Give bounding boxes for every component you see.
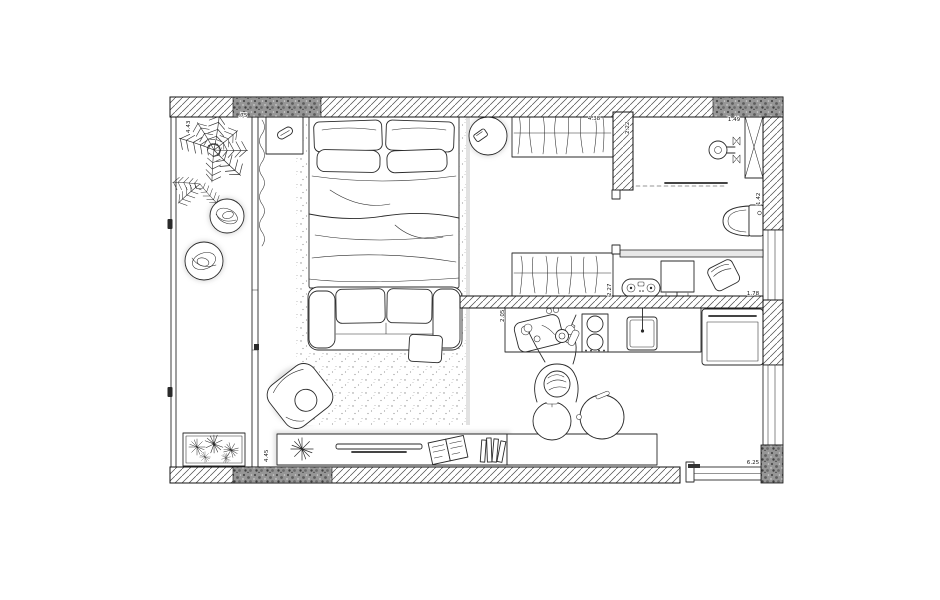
door-jamb	[612, 245, 620, 254]
dim-kitchen-depth: 2.05	[500, 309, 506, 322]
wall-right-kitchen	[763, 300, 783, 365]
wall-wc-divider	[620, 250, 763, 257]
seat-cushion	[706, 258, 741, 293]
log-stool	[185, 242, 223, 280]
shower-column	[745, 116, 763, 178]
door-handle	[254, 344, 259, 350]
log-stool	[210, 199, 244, 233]
bar-stool	[533, 400, 571, 440]
cooktop	[582, 314, 608, 352]
round-side-table	[469, 117, 507, 155]
kitchen	[505, 303, 763, 465]
study-area	[622, 258, 741, 297]
wall-right-column	[761, 445, 783, 483]
rug-edge-shade	[466, 115, 470, 425]
kitchen-island	[507, 434, 657, 465]
floor-plan-page: 4.43 .75 4.38 2.22 1.49 1.42 2.27 2.05 1…	[0, 0, 940, 600]
bathroom	[622, 116, 763, 236]
wall-top-concrete	[713, 97, 783, 117]
balcony-glazing-inner	[252, 117, 259, 467]
dim-shower-width: 1.49	[728, 117, 741, 123]
fern-plant	[171, 113, 249, 209]
dim-living-length: 4.45	[264, 449, 270, 462]
wall-kitchen-back	[460, 296, 763, 308]
curtain	[260, 120, 265, 246]
window-handle	[168, 387, 173, 397]
floor-plan-canvas: 4.43 .75 4.38 2.22 1.49 1.42 2.27 2.05 1…	[0, 0, 940, 600]
egg	[546, 308, 551, 313]
ottoman	[408, 334, 442, 363]
living-area	[260, 113, 508, 465]
nightstand	[266, 117, 303, 154]
shower-valve	[733, 155, 740, 163]
toilet	[723, 205, 763, 236]
dim-study-width: 1.78	[747, 291, 760, 297]
wall-bottom-concrete	[233, 467, 332, 483]
dim-balcony-length: 4.43	[186, 120, 192, 133]
window-right-low	[763, 365, 783, 445]
door-jamb	[612, 190, 620, 199]
double-bed	[309, 115, 459, 288]
balcony-glazing-outer	[168, 117, 177, 467]
monitor-desk	[661, 261, 694, 297]
wall-right-upper	[763, 117, 783, 230]
dim-balcony-width: .75	[239, 113, 248, 119]
bar-stool	[577, 391, 625, 439]
shelf-console	[622, 279, 660, 297]
oven	[702, 309, 763, 365]
closet	[512, 253, 613, 297]
shower-valve	[733, 137, 740, 145]
sliding-door	[622, 183, 727, 186]
planter-box	[183, 432, 245, 466]
dim-wardrobe-width: 4.38	[588, 116, 601, 122]
dim-entry-width: 6.25	[747, 460, 760, 466]
dim-bathroom-depth: 2.22	[625, 122, 631, 134]
dressing-area	[469, 113, 613, 297]
shower-head	[709, 137, 740, 163]
balcony	[168, 113, 260, 467]
dim-wc-depth: 1.42	[756, 193, 762, 205]
dim-closet-depth: 2.27	[607, 283, 613, 296]
media-console	[277, 434, 507, 465]
window-right-mid	[763, 230, 783, 300]
window-handle	[168, 219, 173, 229]
